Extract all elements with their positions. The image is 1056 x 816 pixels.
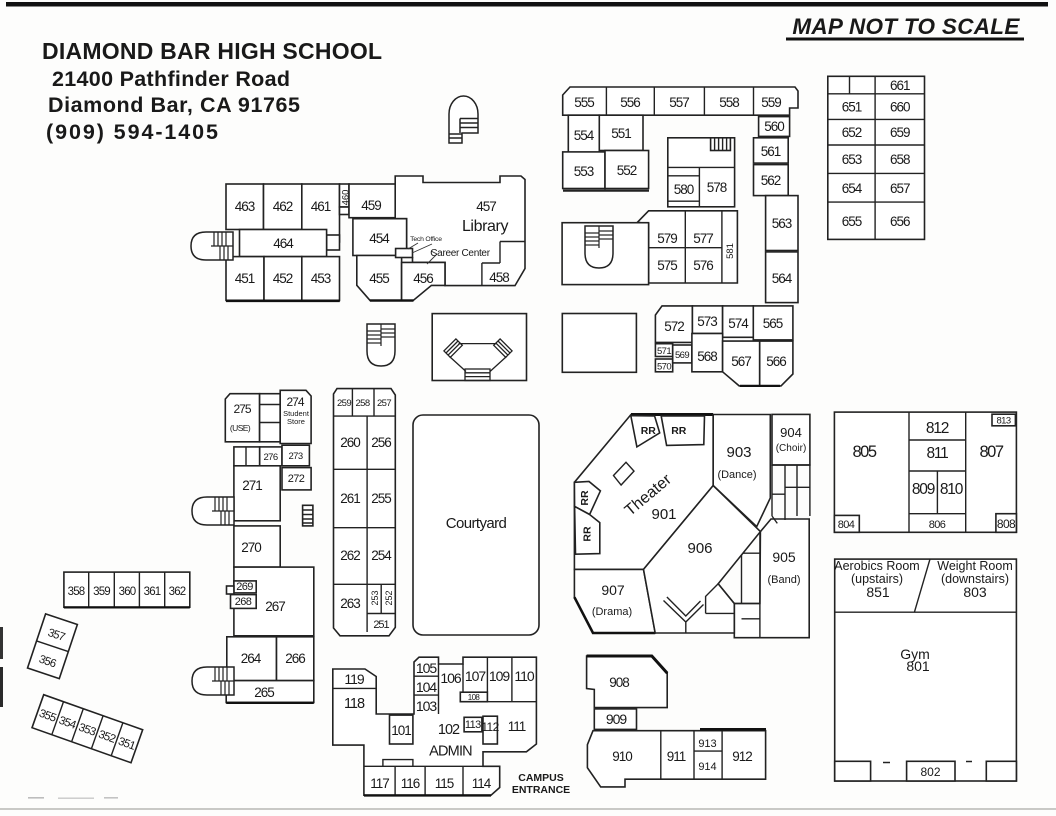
svg-text:457: 457 <box>476 199 496 214</box>
svg-text:556: 556 <box>620 95 640 110</box>
svg-text:Library: Library <box>462 218 509 235</box>
svg-text:268: 268 <box>235 596 252 608</box>
svg-text:851: 851 <box>866 584 890 600</box>
svg-text:572: 572 <box>664 319 684 334</box>
svg-text:462: 462 <box>273 199 293 214</box>
svg-text:109: 109 <box>489 668 511 684</box>
svg-text:565: 565 <box>763 316 783 331</box>
svg-text:904: 904 <box>780 425 802 440</box>
svg-text:903: 903 <box>726 444 751 461</box>
svg-text:906: 906 <box>687 540 712 557</box>
svg-text:(Choir): (Choir) <box>776 443 807 454</box>
svg-text:266: 266 <box>285 651 305 666</box>
svg-text:452: 452 <box>273 271 293 286</box>
svg-text:456: 456 <box>413 271 433 286</box>
svg-text:652: 652 <box>842 125 862 140</box>
svg-text:576: 576 <box>693 258 713 273</box>
svg-text:Diamond Bar, CA 91765: Diamond Bar, CA 91765 <box>48 93 300 117</box>
svg-text:275: 275 <box>233 402 251 416</box>
svg-text:274: 274 <box>286 395 304 409</box>
svg-text:112: 112 <box>481 720 499 734</box>
svg-text:102: 102 <box>438 722 460 738</box>
svg-text:269: 269 <box>236 581 253 593</box>
svg-text:804: 804 <box>838 519 855 531</box>
svg-text:361: 361 <box>144 586 161 598</box>
svg-text:654: 654 <box>842 181 863 196</box>
svg-text:255: 255 <box>371 491 391 506</box>
svg-text:103: 103 <box>416 698 438 714</box>
svg-text:571: 571 <box>657 346 671 357</box>
svg-text:809: 809 <box>912 481 935 498</box>
svg-text:661: 661 <box>890 78 910 93</box>
svg-text:276: 276 <box>263 452 277 463</box>
svg-text:253: 253 <box>370 590 380 605</box>
svg-text:574: 574 <box>728 316 749 331</box>
svg-text:651: 651 <box>842 100 862 115</box>
svg-text:257: 257 <box>377 398 391 409</box>
svg-text:551: 551 <box>611 126 631 141</box>
svg-text:272: 272 <box>288 473 305 485</box>
svg-text:555: 555 <box>574 95 594 110</box>
svg-text:251: 251 <box>373 619 389 631</box>
svg-text:455: 455 <box>369 271 389 286</box>
svg-text:913: 913 <box>698 738 716 750</box>
svg-text:(USE): (USE) <box>230 423 251 433</box>
svg-text:(Drama): (Drama) <box>592 606 632 618</box>
svg-text:113: 113 <box>465 719 481 731</box>
svg-text:RR: RR <box>671 425 687 437</box>
svg-text:561: 561 <box>761 144 781 159</box>
svg-text:Weight Room: Weight Room <box>937 559 1013 573</box>
svg-text:118: 118 <box>344 696 365 712</box>
svg-text:579: 579 <box>657 231 677 246</box>
svg-text:Tech Office: Tech Office <box>410 236 442 243</box>
svg-text:360: 360 <box>119 586 136 598</box>
svg-text:256: 256 <box>371 435 391 450</box>
svg-text:258: 258 <box>355 398 369 409</box>
svg-text:575: 575 <box>657 258 677 273</box>
svg-text:358: 358 <box>68 586 85 598</box>
svg-text:912: 912 <box>732 749 752 764</box>
svg-text:362: 362 <box>169 586 186 598</box>
svg-text:562: 562 <box>761 173 781 188</box>
svg-text:901: 901 <box>651 506 676 523</box>
svg-text:Aerobics Room: Aerobics Room <box>834 559 919 573</box>
svg-text:558: 558 <box>719 95 739 110</box>
svg-text:111: 111 <box>508 719 526 734</box>
svg-text:451: 451 <box>235 271 255 286</box>
svg-text:581: 581 <box>725 243 736 259</box>
svg-text:806: 806 <box>929 519 946 531</box>
svg-text:908: 908 <box>609 675 629 690</box>
svg-text:554: 554 <box>574 128 595 143</box>
svg-text:108: 108 <box>468 693 481 702</box>
svg-text:910: 910 <box>612 749 632 764</box>
svg-text:463: 463 <box>235 199 255 214</box>
svg-text:(Band): (Band) <box>767 574 800 586</box>
svg-text:808: 808 <box>997 517 1016 531</box>
svg-text:259: 259 <box>337 398 351 409</box>
svg-text:907: 907 <box>601 582 625 598</box>
svg-text:105: 105 <box>416 660 438 676</box>
svg-text:CAMPUS: CAMPUS <box>518 772 564 784</box>
svg-text:270: 270 <box>241 540 261 555</box>
svg-text:569: 569 <box>675 350 689 361</box>
svg-text:655: 655 <box>842 214 862 229</box>
svg-text:461: 461 <box>311 199 331 214</box>
svg-text:RR: RR <box>582 526 594 542</box>
svg-text:267: 267 <box>265 599 285 614</box>
svg-text:271: 271 <box>242 478 262 493</box>
svg-text:359: 359 <box>93 586 110 598</box>
svg-text:264: 264 <box>241 651 262 666</box>
svg-text:658: 658 <box>890 152 910 167</box>
svg-text:911: 911 <box>667 749 686 764</box>
svg-text:578: 578 <box>707 180 727 195</box>
svg-text:557: 557 <box>669 95 689 110</box>
svg-text:114: 114 <box>472 776 492 791</box>
svg-text:265: 265 <box>254 685 274 700</box>
svg-text:566: 566 <box>766 354 786 369</box>
svg-text:119: 119 <box>344 671 365 687</box>
svg-text:570: 570 <box>657 362 671 373</box>
svg-text:254: 254 <box>371 548 392 563</box>
svg-text:Career Center: Career Center <box>430 248 490 259</box>
svg-text:660: 660 <box>890 100 910 115</box>
svg-text:458: 458 <box>489 270 509 285</box>
svg-text:464: 464 <box>273 236 294 251</box>
svg-text:811: 811 <box>926 445 948 462</box>
svg-text:905: 905 <box>772 549 796 565</box>
svg-text:106: 106 <box>440 670 462 686</box>
svg-text:110: 110 <box>514 668 535 684</box>
svg-text:810: 810 <box>940 481 964 498</box>
svg-text:813: 813 <box>996 416 1010 427</box>
svg-text:563: 563 <box>772 216 792 231</box>
svg-text:252: 252 <box>384 590 394 605</box>
svg-text:803: 803 <box>963 584 987 600</box>
svg-text:Courtyard: Courtyard <box>446 515 507 532</box>
svg-text:DIAMOND BAR HIGH SCHOOL: DIAMOND BAR HIGH SCHOOL <box>42 38 382 64</box>
svg-text:116: 116 <box>401 776 420 791</box>
svg-text:(Dance): (Dance) <box>717 469 756 481</box>
svg-text:101: 101 <box>391 723 411 738</box>
svg-text:ADMIN: ADMIN <box>429 744 472 760</box>
svg-text:567: 567 <box>731 354 751 369</box>
svg-text:Store: Store <box>287 417 305 426</box>
svg-text:560: 560 <box>764 119 784 134</box>
svg-text:454: 454 <box>369 231 390 246</box>
svg-text:263: 263 <box>340 596 360 611</box>
svg-text:577: 577 <box>693 231 713 246</box>
svg-text:RR: RR <box>641 425 657 437</box>
svg-text:261: 261 <box>340 491 360 506</box>
svg-text:260: 260 <box>340 435 360 450</box>
svg-text:564: 564 <box>772 271 793 286</box>
svg-text:553: 553 <box>574 164 594 179</box>
svg-text:657: 657 <box>890 181 910 196</box>
svg-text:RR: RR <box>579 490 591 506</box>
svg-text:812: 812 <box>926 420 949 437</box>
svg-text:453: 453 <box>311 271 331 286</box>
svg-text:653: 653 <box>842 152 862 167</box>
svg-text:552: 552 <box>617 163 637 178</box>
svg-text:459: 459 <box>361 198 381 213</box>
svg-text:801: 801 <box>906 658 930 674</box>
svg-text:914: 914 <box>698 761 716 773</box>
svg-text:115: 115 <box>435 776 454 791</box>
svg-text:573: 573 <box>697 314 717 329</box>
svg-text:ENTRANCE: ENTRANCE <box>512 784 570 796</box>
svg-text:559: 559 <box>761 95 781 110</box>
svg-text:802: 802 <box>920 765 940 779</box>
svg-text:104: 104 <box>416 679 438 695</box>
svg-text:21400 Pathfinder Road: 21400 Pathfinder Road <box>52 67 290 91</box>
svg-text:659: 659 <box>890 125 910 140</box>
svg-text:580: 580 <box>674 182 694 197</box>
svg-text:460: 460 <box>340 190 351 206</box>
svg-text:107: 107 <box>465 668 487 684</box>
svg-text:805: 805 <box>852 443 876 461</box>
svg-text:117: 117 <box>370 776 389 791</box>
svg-text:262: 262 <box>340 548 360 563</box>
svg-text:656: 656 <box>890 214 910 229</box>
svg-text:273: 273 <box>288 451 302 462</box>
svg-text:807: 807 <box>979 443 1003 461</box>
svg-text:(909) 594-1405: (909) 594-1405 <box>46 120 218 144</box>
svg-text:MAP NOT TO SCALE: MAP NOT TO SCALE <box>792 14 1020 39</box>
svg-text:568: 568 <box>697 349 717 364</box>
svg-text:909: 909 <box>606 711 628 727</box>
